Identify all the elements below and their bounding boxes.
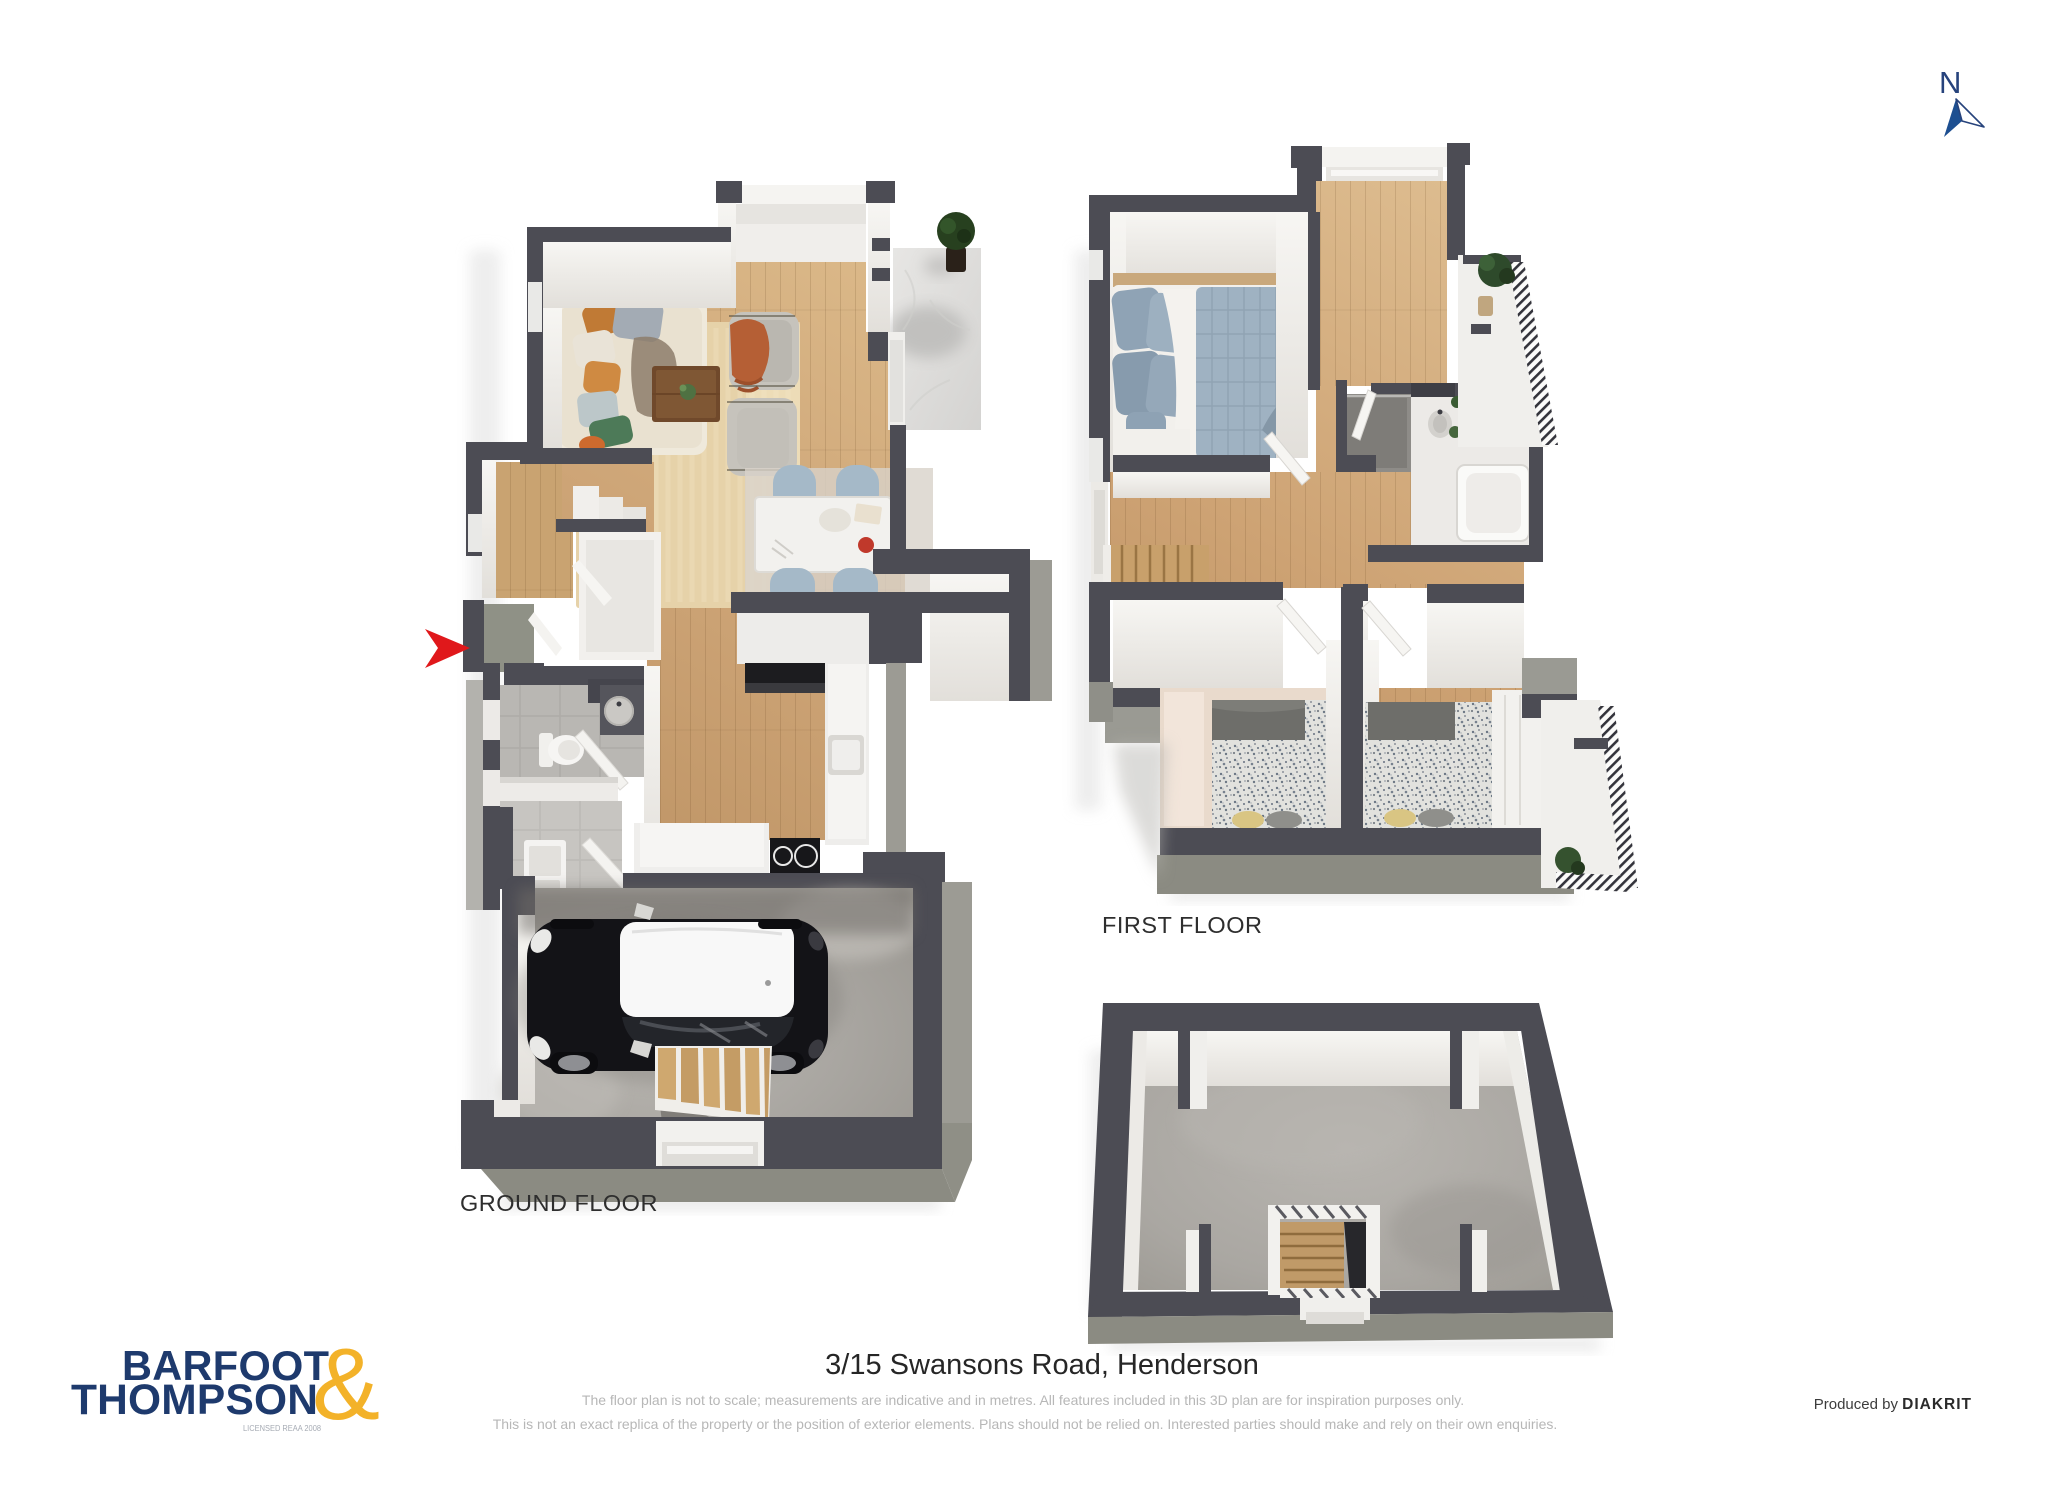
svg-text:N: N [1939,65,1961,100]
svg-text:THOMPSON: THOMPSON [71,1377,318,1424]
svg-text:This is not an exact replica o: This is not an exact replica of the prop… [493,1416,1558,1432]
svg-text:LICENSED REAA 2008: LICENSED REAA 2008 [243,1424,322,1433]
svg-text:FIRST FLOOR: FIRST FLOOR [1102,912,1262,938]
svg-text:3/15 Swansons Road, Henderson: 3/15 Swansons Road, Henderson [825,1349,1259,1381]
svg-text:GROUND FLOOR: GROUND FLOOR [460,1190,658,1216]
svg-text:Produced by DIAKRIT: Produced by DIAKRIT [1814,1396,1972,1413]
svg-text:The floor plan is not to scale: The floor plan is not to scale; measurem… [582,1392,1464,1408]
